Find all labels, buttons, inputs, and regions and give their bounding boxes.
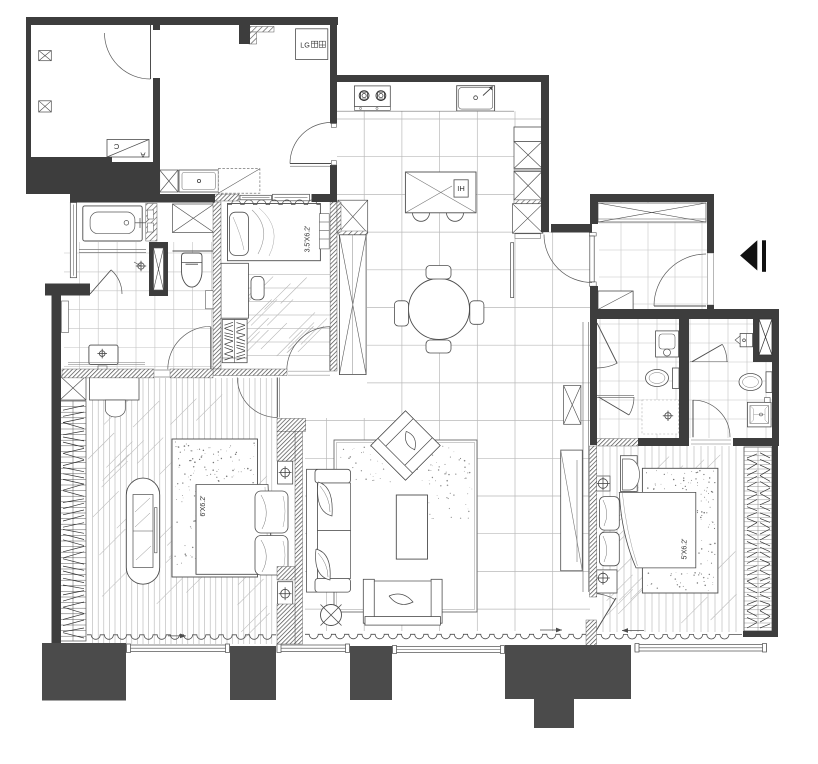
svg-text:3.5'X6.2': 3.5'X6.2' [305, 226, 312, 253]
svg-text:6'X6.2': 6'X6.2' [200, 496, 207, 517]
svg-text:A: A [140, 151, 145, 160]
svg-text:C: C [113, 142, 119, 151]
svg-text:IH: IH [457, 184, 465, 193]
svg-text:LG: LG [300, 41, 310, 50]
svg-text:5'X6.2': 5'X6.2' [682, 539, 689, 560]
